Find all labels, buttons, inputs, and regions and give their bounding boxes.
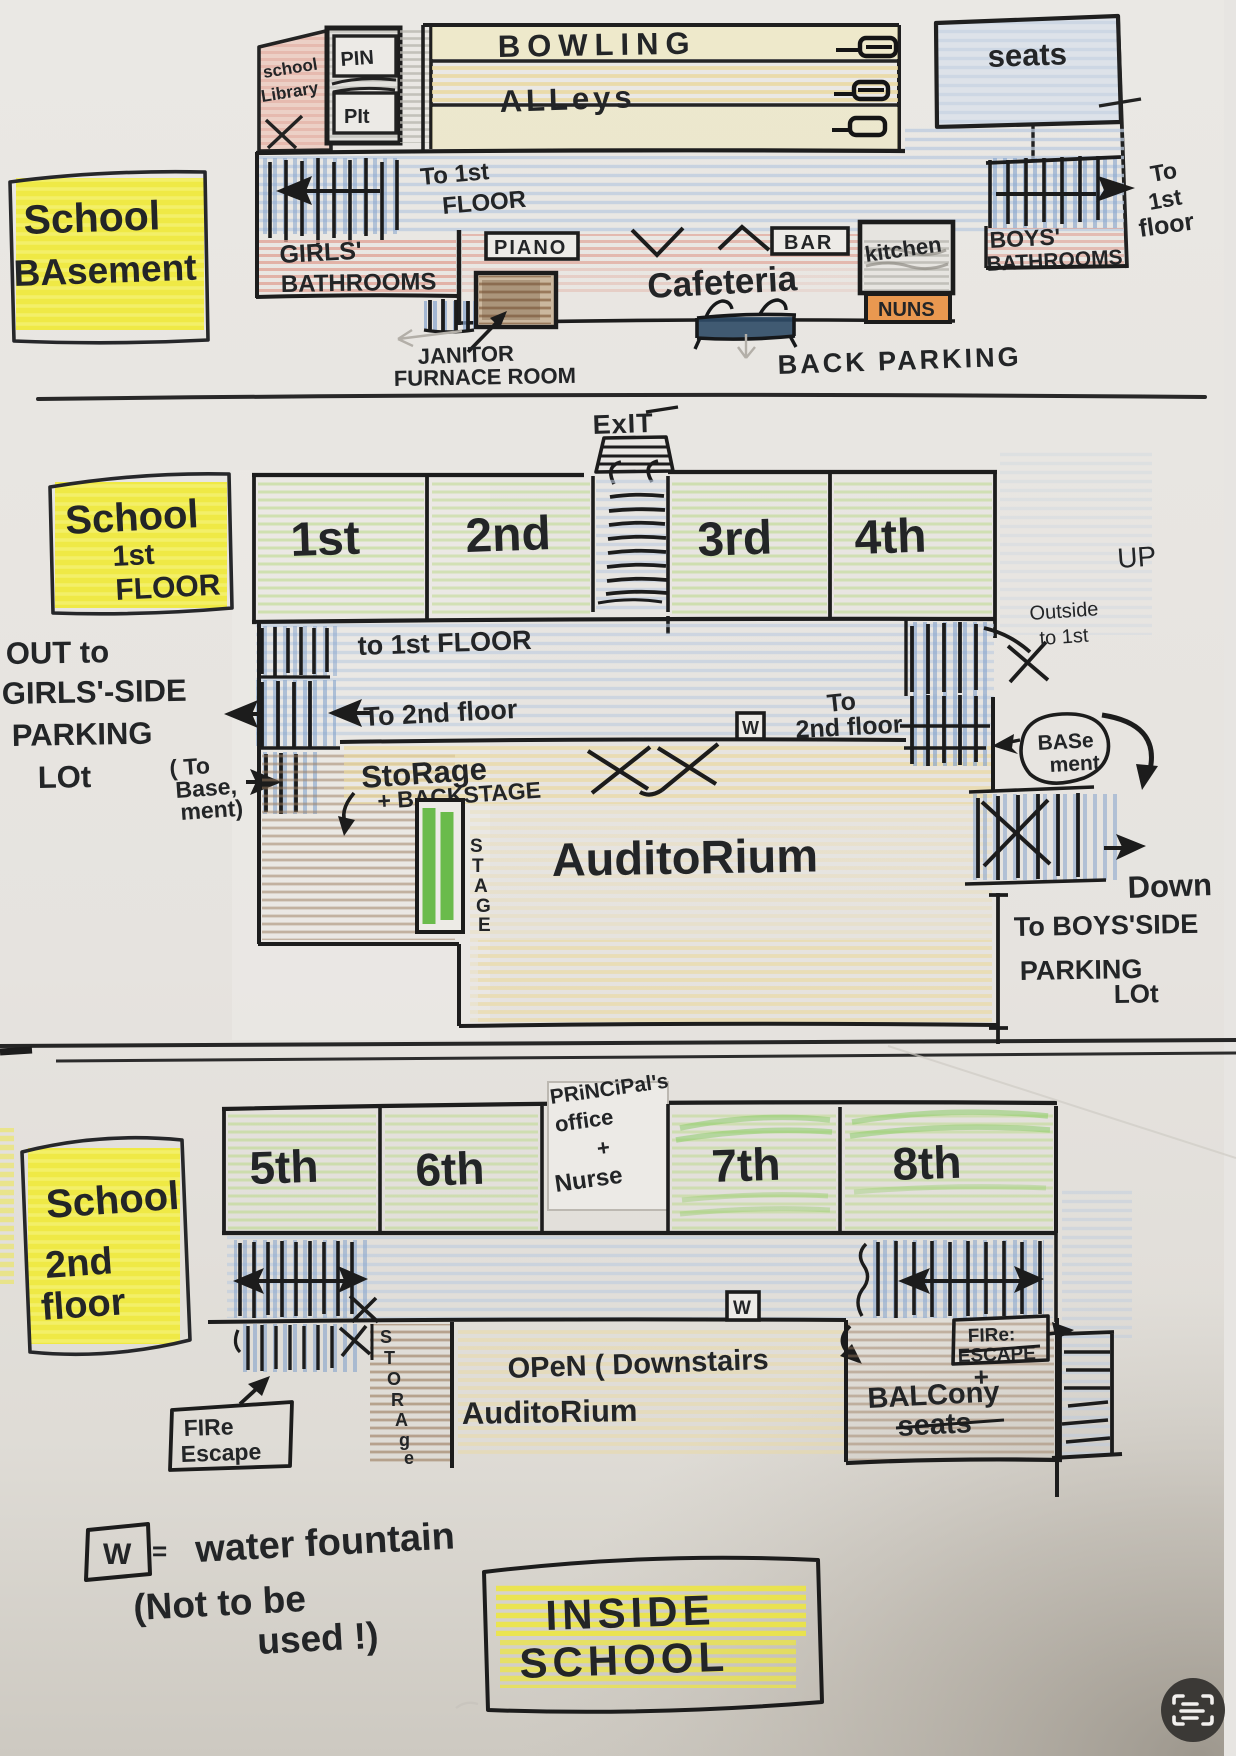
svg-text:W: W — [742, 718, 759, 738]
svg-text:S: S — [470, 836, 483, 857]
svg-text:A: A — [474, 876, 488, 897]
svg-text:ExIT: ExIT — [592, 408, 654, 440]
svg-text:G: G — [476, 896, 491, 917]
svg-text:to 1st FLOOR: to 1st FLOOR — [357, 625, 532, 661]
svg-text:6th: 6th — [415, 1142, 486, 1196]
svg-text:PIt: PIt — [344, 106, 370, 128]
svg-text:3rd: 3rd — [697, 511, 774, 567]
svg-text:T: T — [472, 856, 484, 877]
svg-text:To BOYS'SIDE: To BOYS'SIDE — [1014, 909, 1199, 942]
svg-text:1st: 1st — [290, 512, 361, 567]
svg-text:ALLeys: ALLeys — [499, 79, 636, 119]
svg-text:BOWLING: BOWLING — [498, 26, 697, 64]
svg-text:LOt: LOt — [38, 759, 92, 795]
svg-text:PIN: PIN — [340, 47, 375, 71]
svg-text:UP: UP — [1116, 540, 1157, 574]
svg-text:Down: Down — [1127, 867, 1213, 905]
svg-text:BASe: BASe — [1037, 729, 1094, 755]
svg-text:O: O — [387, 1369, 401, 1389]
svg-text:GIRLS'-SIDE: GIRLS'-SIDE — [2, 673, 187, 711]
svg-text:g: g — [399, 1430, 410, 1450]
svg-text:ment: ment — [1049, 751, 1100, 777]
svg-text:BAR: BAR — [784, 232, 833, 254]
svg-text:used !): used !) — [256, 1615, 379, 1662]
svg-text:=: = — [152, 1536, 167, 1566]
svg-text:FURNACE ROOM: FURNACE ROOM — [394, 363, 577, 391]
svg-text:ment): ment) — [180, 795, 244, 825]
svg-text:T: T — [384, 1348, 395, 1368]
svg-text:2nd floor: 2nd floor — [795, 710, 904, 744]
svg-text:S: S — [380, 1327, 392, 1347]
svg-text:E: E — [478, 915, 491, 936]
svg-text:W: W — [103, 1538, 132, 1571]
svg-text:FIRe: FIRe — [183, 1413, 234, 1441]
svg-text:2nd: 2nd — [44, 1240, 114, 1287]
svg-text:BAsement: BAsement — [13, 247, 197, 294]
svg-text:floor: floor — [40, 1281, 127, 1329]
svg-text:seats: seats — [987, 36, 1067, 74]
svg-text:INSIDE: INSIDE — [545, 1586, 717, 1639]
svg-text:5th: 5th — [249, 1140, 320, 1194]
svg-text:7th: 7th — [711, 1138, 782, 1192]
svg-text:R: R — [391, 1390, 404, 1410]
svg-text:PIANO: PIANO — [494, 237, 567, 259]
svg-text:4th: 4th — [854, 510, 928, 565]
svg-text:AuditoRium: AuditoRium — [462, 1393, 638, 1431]
svg-text:OUT to: OUT to — [6, 634, 110, 671]
svg-text:1st: 1st — [112, 539, 156, 573]
svg-text:2nd: 2nd — [465, 507, 552, 563]
svg-text:PARKING: PARKING — [12, 716, 153, 753]
svg-text:To: To — [1148, 157, 1179, 187]
svg-text:NUNS: NUNS — [878, 299, 935, 321]
svg-text:A: A — [395, 1410, 408, 1430]
svg-text:Escape: Escape — [180, 1438, 261, 1467]
svg-text:8th: 8th — [892, 1136, 963, 1190]
svg-text:School: School — [64, 492, 199, 543]
svg-text:to 1st: to 1st — [1039, 625, 1090, 650]
svg-text:FLOOR: FLOOR — [115, 569, 222, 607]
svg-text:W: W — [733, 1298, 751, 1319]
svg-text:School: School — [45, 1174, 181, 1227]
svg-text:LOt: LOt — [1114, 978, 1160, 1009]
svg-text:GIRLS': GIRLS' — [279, 237, 363, 269]
svg-text:e: e — [404, 1448, 414, 1468]
svg-text:School: School — [23, 192, 161, 243]
svg-text:AuditoRium: AuditoRium — [551, 828, 818, 886]
svg-text:SCHOOL: SCHOOL — [519, 1633, 730, 1687]
